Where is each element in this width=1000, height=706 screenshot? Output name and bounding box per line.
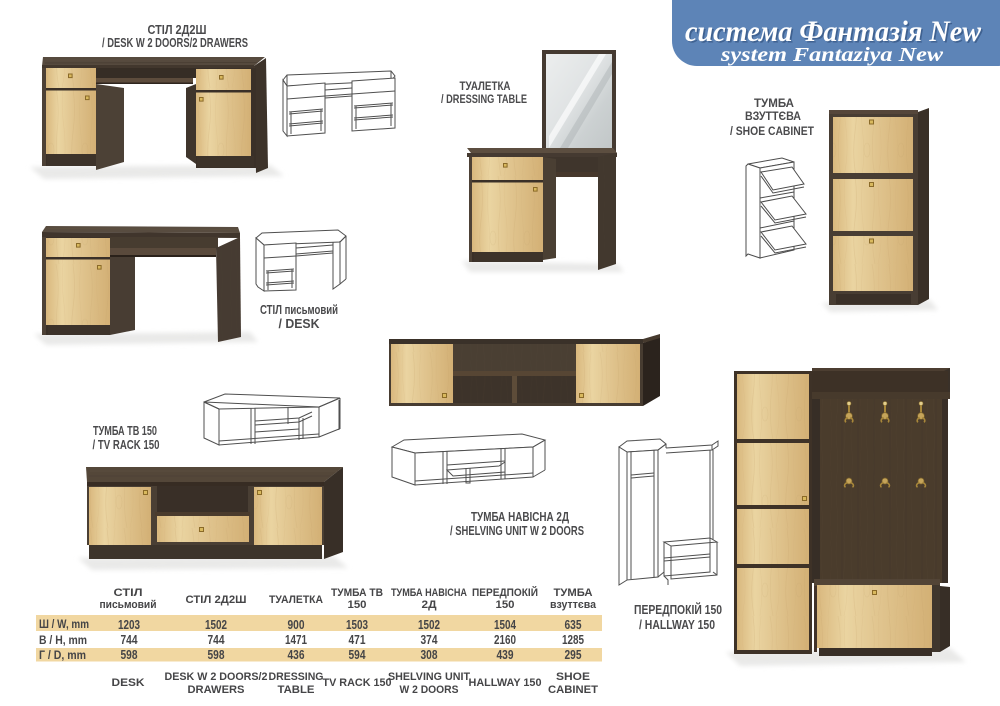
svg-text:1285: 1285 (562, 632, 584, 647)
svg-text:436: 436 (288, 647, 305, 662)
svg-text:744: 744 (208, 632, 226, 647)
svg-text:TABLE: TABLE (278, 684, 315, 696)
svg-text:900: 900 (288, 617, 305, 632)
svg-text:/ DESK W 2 DOORS/2 DRAWERS: / DESK W 2 DOORS/2 DRAWERS (102, 36, 248, 50)
svg-text:439: 439 (497, 647, 514, 662)
svg-text:DRAWERS: DRAWERS (188, 684, 245, 696)
svg-text:ТУАЛЕТКА: ТУАЛЕТКА (269, 594, 323, 606)
svg-text:DESK W 2 DOORS/2: DESK W 2 DOORS/2 (165, 671, 268, 683)
svg-text:150: 150 (496, 599, 515, 611)
svg-text:635: 635 (565, 617, 582, 632)
svg-text:TV RACK 150: TV RACK 150 (323, 677, 392, 689)
svg-text:1502: 1502 (205, 617, 227, 632)
svg-text:1503: 1503 (346, 617, 368, 632)
svg-text:W 2 DOORS: W 2 DOORS (400, 684, 459, 696)
svg-text:1471: 1471 (285, 632, 307, 647)
svg-text:/ TV RACK 150: / TV RACK 150 (93, 438, 160, 452)
svg-text:295: 295 (565, 647, 582, 662)
svg-text:ТУМБА НАВІСНА 2Д: ТУМБА НАВІСНА 2Д (471, 510, 569, 524)
svg-text:взуттєва: взуттєва (550, 599, 597, 611)
svg-text:СТІЛ 2Д2Ш: СТІЛ 2Д2Ш (148, 23, 207, 37)
svg-text:СТІЛ: СТІЛ (114, 587, 143, 599)
svg-text:744: 744 (121, 632, 139, 647)
svg-text:SHOE: SHOE (556, 671, 590, 683)
svg-text:598: 598 (121, 647, 138, 662)
svg-text:СТІЛ письмовий: СТІЛ письмовий (260, 303, 338, 317)
svg-text:DRESSING: DRESSING (269, 671, 324, 683)
svg-text:HALLWAY 150: HALLWAY 150 (469, 677, 542, 689)
svg-text:594: 594 (349, 647, 367, 662)
svg-text:письмовий: письмовий (100, 599, 157, 611)
svg-text:/ HALLWAY 150: / HALLWAY 150 (639, 618, 715, 632)
svg-text:/ DESK: / DESK (279, 317, 320, 331)
svg-text:ВЗУТТЄВА: ВЗУТТЄВА (745, 109, 801, 123)
svg-text:ПЕРЕДПОКІЙ 150: ПЕРЕДПОКІЙ 150 (634, 602, 722, 617)
svg-text:150: 150 (348, 599, 367, 611)
svg-text:1504: 1504 (494, 617, 517, 632)
svg-text:ТУАЛЕТКА: ТУАЛЕТКА (460, 79, 511, 93)
svg-text:SHELVING UNIT: SHELVING UNIT (388, 671, 470, 683)
svg-text:ТУМБА: ТУМБА (754, 96, 794, 110)
svg-text:Ш / W, mm: Ш / W, mm (39, 617, 89, 631)
svg-text:2160: 2160 (494, 632, 516, 647)
svg-text:ПЕРЕДПОКІЙ: ПЕРЕДПОКІЙ (472, 586, 538, 599)
svg-text:374: 374 (421, 632, 439, 647)
svg-text:Г / D, mm: Г / D, mm (39, 648, 86, 662)
svg-text:CABINET: CABINET (548, 684, 598, 696)
svg-text:/ DRESSING TABLE: / DRESSING TABLE (441, 92, 527, 106)
svg-text:СТІЛ 2Д2Ш: СТІЛ 2Д2Ш (186, 594, 247, 606)
svg-text:DESK: DESK (112, 677, 145, 689)
svg-text:ТУМБА НАВІСНА: ТУМБА НАВІСНА (391, 587, 467, 599)
svg-text:598: 598 (208, 647, 225, 662)
svg-text:system Fantaziya New: system Fantaziya New (720, 44, 944, 66)
svg-text:308: 308 (421, 647, 438, 662)
svg-text:ТУМБА ТВ 150: ТУМБА ТВ 150 (93, 424, 157, 438)
svg-text:1203: 1203 (118, 617, 140, 632)
svg-text:ТУМБА ТВ: ТУМБА ТВ (331, 587, 383, 599)
svg-text:471: 471 (349, 632, 366, 647)
svg-text:2Д: 2Д (422, 599, 437, 611)
svg-text:/ SHOE CABINET: / SHOE CABINET (730, 124, 815, 138)
svg-text:/ SHELVING UNIT W 2 DOORS: / SHELVING UNIT W 2 DOORS (450, 524, 584, 538)
svg-text:В / H, mm: В / H, mm (39, 633, 87, 647)
svg-text:ТУМБА: ТУМБА (554, 587, 593, 599)
svg-text:1502: 1502 (418, 617, 440, 632)
